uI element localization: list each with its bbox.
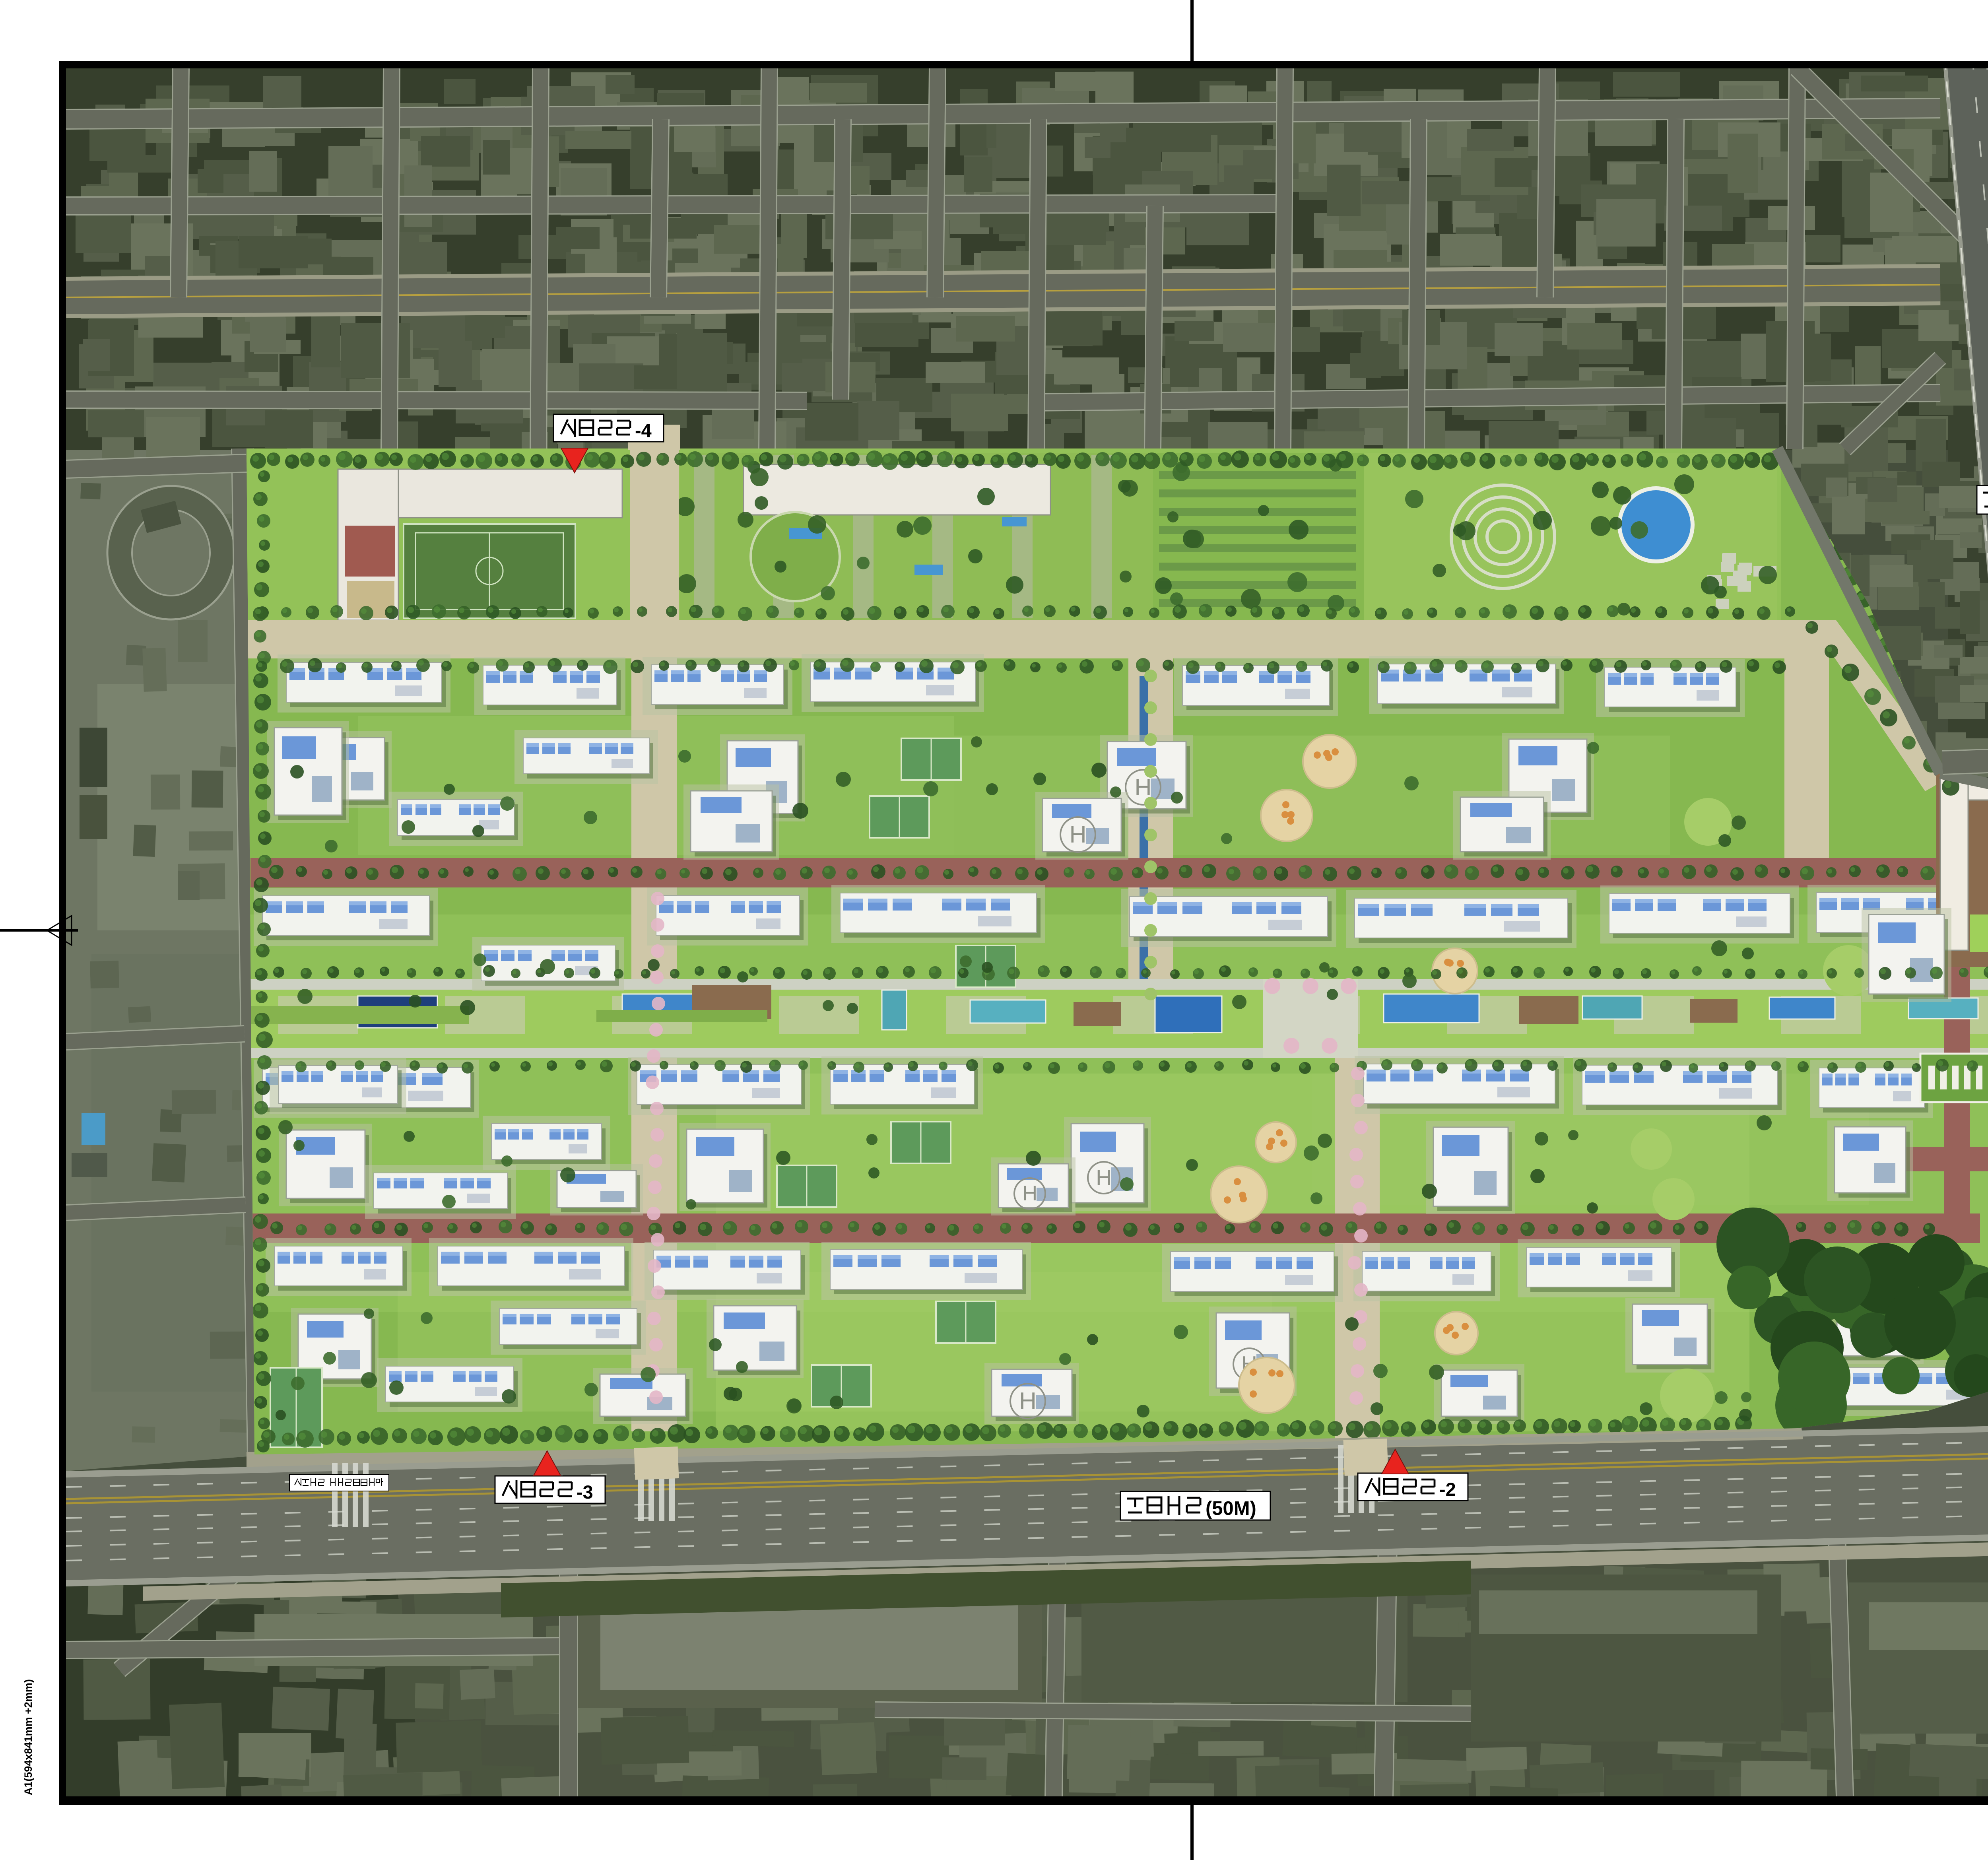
svg-text:A1(594x841mm +2mm): A1(594x841mm +2mm) [22, 1679, 34, 1795]
svg-text:(50M): (50M) [1206, 1498, 1256, 1519]
svg-text:H: H [1070, 821, 1087, 848]
svg-text:H: H [1019, 1387, 1037, 1414]
svg-text:H: H [1096, 1165, 1112, 1190]
svg-text:H: H [1135, 774, 1152, 800]
svg-text:H: H [1022, 1182, 1037, 1205]
svg-text:-4: -4 [635, 420, 652, 441]
svg-text:-3: -3 [577, 1482, 593, 1503]
svg-text:-2: -2 [1439, 1479, 1456, 1500]
